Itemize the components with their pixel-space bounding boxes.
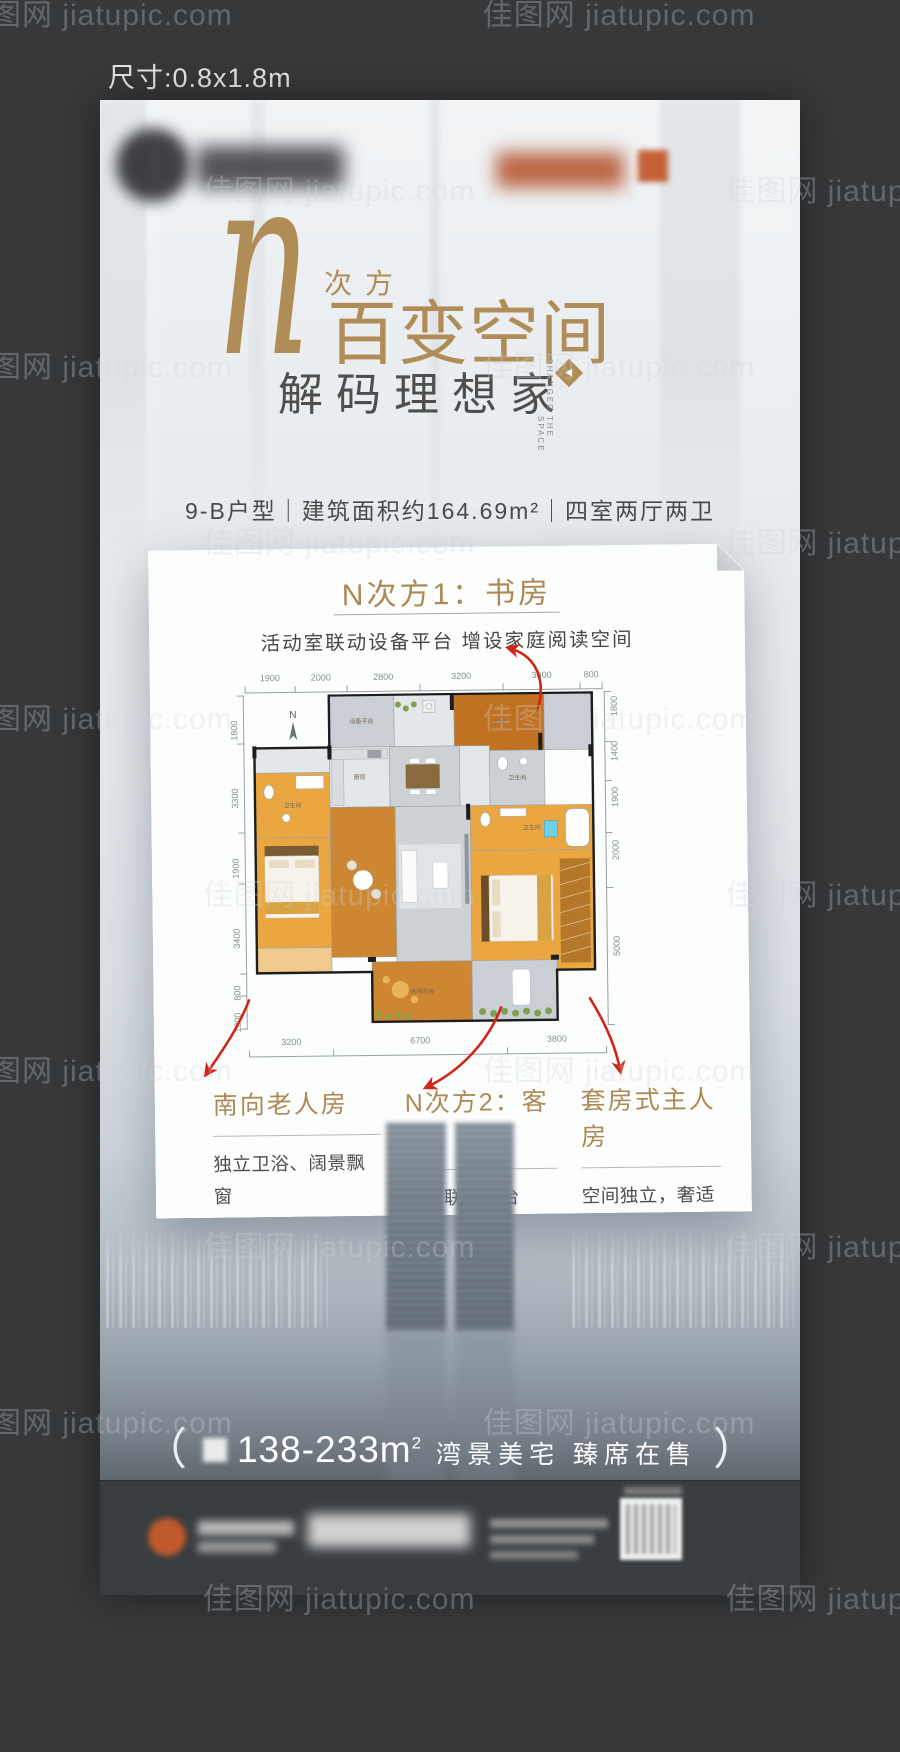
- project-logo-text-blurred: [496, 152, 624, 188]
- footer-address-line-blurred: [490, 1535, 594, 1544]
- dims-top: 19002000280032003000800: [244, 663, 602, 693]
- room-label: 卫生间: [284, 801, 302, 809]
- room: [459, 746, 490, 806]
- area-range: 138-233m2: [237, 1429, 422, 1471]
- dim-segment: 1400: [604, 741, 611, 780]
- headline-n-glyph: n: [216, 138, 311, 393]
- contact-bar: [100, 1480, 800, 1595]
- qr-caption-blurred: [624, 1487, 682, 1495]
- floorplan-drawing: 设备平台书房卫生间卧室厨房餐厅卫生间茶室客厅卫生间主卧休闲阳台: [247, 691, 603, 1029]
- dim-segment: 3200: [419, 683, 502, 691]
- unit-spec-line: 9-B户型｜建筑面积约164.69m²｜四室两厅两卫: [100, 492, 800, 526]
- svg-text:N: N: [289, 710, 296, 721]
- footer-address-line-blurred: [490, 1519, 608, 1528]
- qr-code-blurred: [620, 1498, 682, 1560]
- dim-segment: 6700: [333, 1047, 507, 1056]
- project-logo-seal-blurred: [638, 150, 668, 182]
- footer-phone-blurred: [308, 1514, 470, 1547]
- tower-right: [455, 1122, 515, 1330]
- feature-col-title: 南向老人房: [212, 1084, 380, 1122]
- feature1-title: N次方1：书房: [148, 565, 744, 616]
- feature-col-rule: [213, 1134, 381, 1137]
- dims-left: 18003300190034008001200: [218, 696, 248, 1030]
- headline-en-line1: CHANGED: [536, 358, 554, 412]
- dim-segment: 1900: [605, 780, 613, 833]
- dim-segment: 3300: [237, 744, 245, 832]
- footer-disclaimer-blurred: [490, 1551, 578, 1559]
- dim-segment: 800: [240, 974, 247, 996]
- stock-preview-page: { "meta": { "size_label": "尺寸:0.8x1.8m",…: [0, 0, 900, 1752]
- feature-col-rule: [582, 1166, 722, 1169]
- dim-segment: 3400: [239, 883, 247, 974]
- poster: n 次方 百变空间 解码理想家 CHANGED THE SPACE 9-B户型｜…: [100, 100, 800, 1595]
- headline-english-vertical: CHANGED THE SPACE: [536, 358, 554, 416]
- dim-segment: 1800: [604, 691, 612, 741]
- dim-segment: 2800: [347, 684, 420, 692]
- floorplan-card-wrap: N次方1：书房 活动室联动设备平台 增设家庭阅读空间 1900200028003…: [152, 547, 748, 1215]
- room: [254, 747, 329, 773]
- slogan-paren-open: （: [143, 1428, 187, 1472]
- dim-segment: 800: [580, 682, 602, 689]
- feature1-desc: 活动室联动设备平台 增设家庭阅读空间: [149, 621, 745, 657]
- skyline-bars-left: [106, 1228, 328, 1328]
- footer-logo-blurred: [148, 1518, 186, 1556]
- compass-icon: N: [289, 710, 297, 740]
- sales-slogan: （ 138-233m2 湾景美宅 臻席在售 ）: [100, 1428, 800, 1472]
- dim-segment: 2000: [294, 685, 346, 693]
- footer-brand-subtext-blurred: [198, 1542, 276, 1552]
- dim-segment: 1800: [237, 696, 245, 745]
- dims-bottom: 320067003800: [249, 1027, 607, 1057]
- room-label: 卫生间: [508, 774, 526, 782]
- headline-sub: 解码理想家: [278, 358, 568, 423]
- skyline-bars-right: [572, 1228, 794, 1328]
- feature-col-line: 独立卫浴、阔景飘窗: [213, 1147, 382, 1214]
- room: [257, 947, 332, 973]
- asset-size-label: 尺寸:0.8x1.8m: [108, 56, 292, 95]
- dim-segment: 1900: [238, 832, 246, 883]
- dim-segment: 3800: [507, 1046, 606, 1054]
- headline-en-line2: THE SPACE: [536, 416, 554, 453]
- slogan-text: 湾景美宅 臻席在售: [436, 1429, 697, 1471]
- feature-col-title: 套房式主人房: [580, 1080, 721, 1154]
- room: [544, 692, 593, 750]
- dim-segment: 1900: [245, 686, 295, 694]
- floorplan-card: N次方1：书房 活动室联动设备平台 增设家庭阅读空间 1900200028003…: [148, 543, 752, 1218]
- dim-segment: 5000: [606, 887, 615, 1024]
- developer-logo-emblem-blurred: [116, 128, 190, 202]
- slogan-paren-close: ）: [713, 1428, 757, 1472]
- dims-right: 18001400190020005000: [604, 691, 634, 1025]
- dim-segment: 3200: [249, 1049, 333, 1057]
- mini-logo-blurred: [203, 1438, 227, 1462]
- dim-segment: 3000: [502, 682, 580, 690]
- tower-left: [386, 1122, 446, 1330]
- dim-segment: 1200: [240, 996, 247, 1029]
- room-label: 书房: [493, 718, 505, 726]
- room-label: 厨房: [354, 773, 366, 781]
- room-label: 卫生间: [523, 823, 541, 831]
- dim-segment: 2000: [605, 832, 613, 887]
- footer-brand-text-blurred: [198, 1521, 294, 1535]
- tower-render-blurred: [386, 1122, 514, 1330]
